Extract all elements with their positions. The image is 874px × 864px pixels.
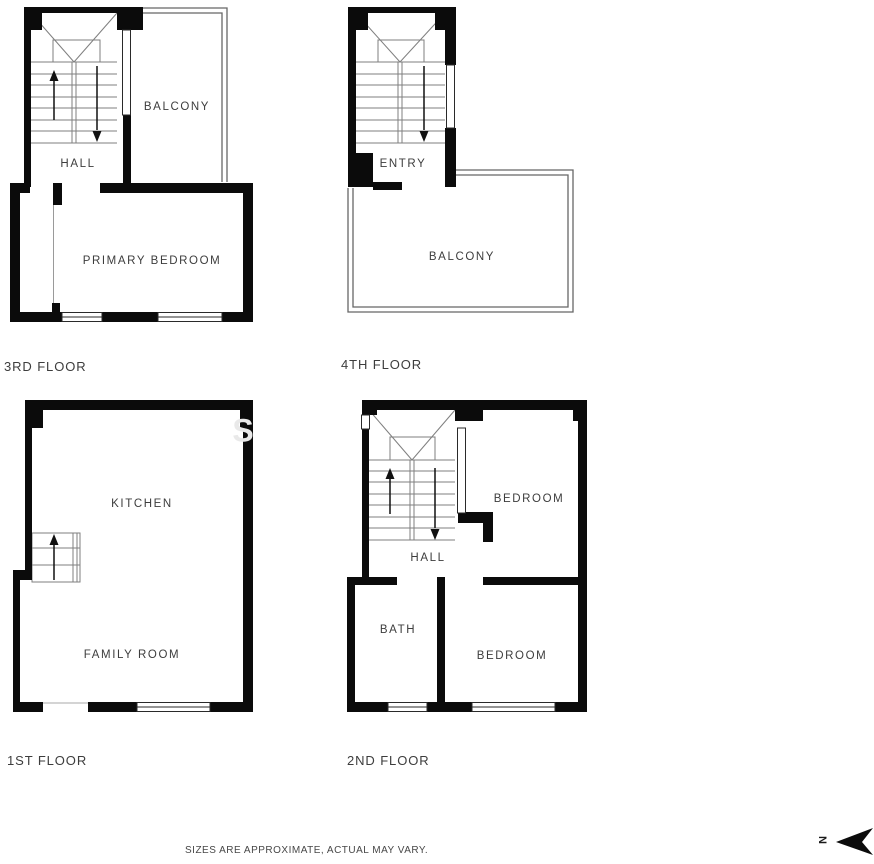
- stair-up-arrow-icon: [50, 534, 59, 580]
- floor-4-stairs: [356, 13, 445, 143]
- floor-caption-3rd: 3RD FLOOR: [4, 359, 87, 374]
- floor-4-windows: [447, 65, 455, 128]
- floor-1-walls: [13, 400, 253, 712]
- room-label-hall-3rd: HALL: [60, 158, 95, 170]
- room-label-balcony-3rd: BALCONY: [144, 101, 210, 113]
- floor-4-balcony-railing: [348, 170, 573, 312]
- stair-up-arrow-icon: [50, 70, 59, 120]
- stair-down-arrow-icon: [431, 468, 440, 540]
- floor-2-plan: [347, 400, 587, 712]
- floor-3-walls: [10, 7, 253, 322]
- floorplan-canvas: [0, 0, 874, 864]
- floor-2-stairs: [369, 410, 455, 540]
- floor-caption-1st: 1ST FLOOR: [7, 753, 87, 768]
- floor-2-windows: [362, 415, 556, 712]
- floor-3-balcony-railing: [143, 8, 227, 182]
- room-label-bath: BATH: [380, 624, 416, 636]
- room-label-primary-bedroom: PRIMARY BEDROOM: [83, 255, 222, 267]
- room-label-kitchen: KITCHEN: [111, 498, 173, 510]
- room-label-family-room: FAMILY ROOM: [84, 649, 180, 661]
- floor-caption-4th: 4TH FLOOR: [341, 357, 422, 372]
- floor-3-stairs: [31, 13, 117, 143]
- room-label-hall-2nd: HALL: [410, 552, 445, 564]
- room-label-entry: ENTRY: [380, 158, 427, 170]
- floor-caption-2nd: 2ND FLOOR: [347, 753, 430, 768]
- floor-1-windows: [137, 703, 210, 712]
- room-label-bedroom-2nd-b: BEDROOM: [477, 650, 548, 662]
- disclaimer-text: SIZES ARE APPROXIMATE, ACTUAL MAY VARY.: [185, 845, 428, 856]
- floor-1-plan: [13, 400, 253, 712]
- watermark-letter: S: [232, 413, 253, 450]
- room-label-balcony-4th: BALCONY: [429, 251, 495, 263]
- stair-up-arrow-icon: [386, 468, 395, 514]
- floor-2-walls: [347, 400, 587, 712]
- room-label-bedroom-2nd-a: BEDROOM: [494, 493, 565, 505]
- floor-3-plan: [10, 7, 253, 322]
- north-arrow-icon: [836, 828, 873, 855]
- compass-north-label: N: [816, 836, 828, 844]
